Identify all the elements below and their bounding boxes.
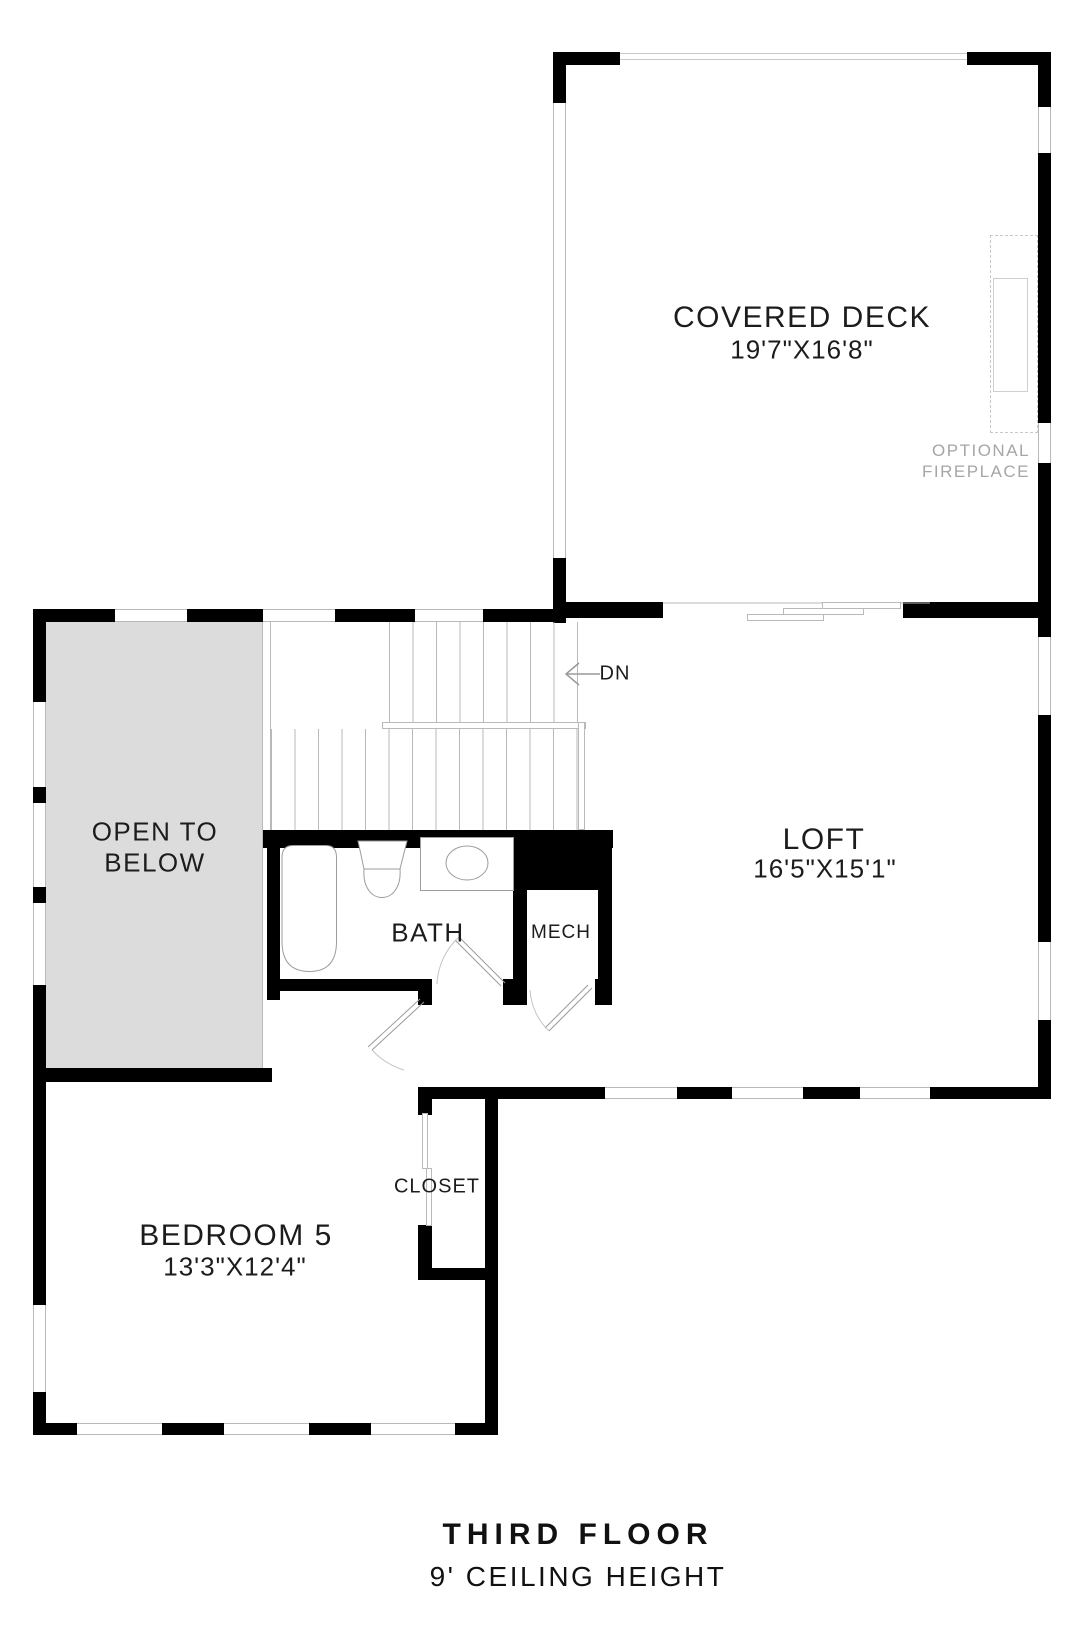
sink-counter-fixture xyxy=(421,838,514,891)
room-label-mech: MECH xyxy=(531,922,591,944)
optional-fireplace-line2: FIREPLACE xyxy=(922,461,1030,482)
bathtub-fixture xyxy=(282,846,337,972)
deck-sliding-door xyxy=(663,603,930,621)
room-dims-covered-deck: 19'7"X16'8" xyxy=(730,335,874,366)
room-label-loft: LOFT xyxy=(783,823,866,857)
room-label-bedroom5: BEDROOM 5 xyxy=(139,1219,333,1253)
dn-label: DN xyxy=(600,663,631,686)
floor-plan: COVERED DECK 19'7"X16'8" OPTIONAL FIREPL… xyxy=(0,0,1080,1641)
bedroom-door xyxy=(368,999,424,1070)
mech-door xyxy=(530,985,592,1031)
room-dims-bedroom5: 13'3"X12'4" xyxy=(163,1252,307,1283)
room-label-covered-deck: COVERED DECK xyxy=(673,301,931,335)
closet-bypass-door xyxy=(423,1114,432,1226)
room-label-open-to-below-line2: BELOW xyxy=(104,848,205,879)
optional-fireplace-label: OPTIONAL FIREPLACE xyxy=(922,440,1030,482)
toilet-fixture xyxy=(358,841,407,898)
dn-arrow-icon xyxy=(566,663,600,685)
floor-title: THIRD FLOOR xyxy=(443,1518,714,1552)
ceiling-height-subtitle: 9' CEILING HEIGHT xyxy=(430,1561,727,1593)
room-label-bath: BATH xyxy=(391,918,464,949)
room-label-open-to-below-line1: OPEN TO xyxy=(92,817,219,848)
room-label-closet: CLOSET xyxy=(394,1176,480,1199)
room-dims-loft: 16'5"X15'1" xyxy=(753,854,897,885)
optional-fireplace-line1: OPTIONAL xyxy=(922,440,1030,461)
